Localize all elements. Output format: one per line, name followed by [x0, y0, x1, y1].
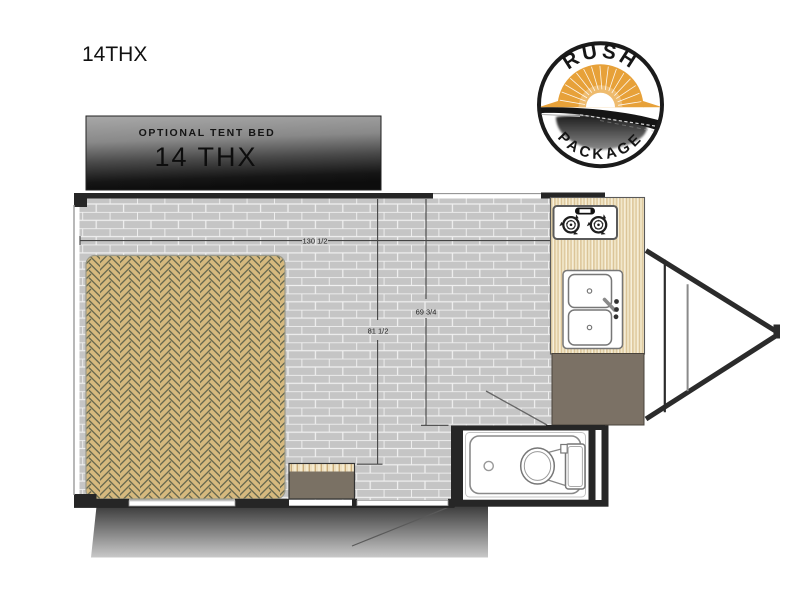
svg-text:69 3/4: 69 3/4 — [416, 308, 437, 317]
svg-text:OPTIONAL TENT BED: OPTIONAL TENT BED — [139, 127, 276, 139]
svg-text:14 THX: 14 THX — [154, 142, 257, 172]
svg-text:14THX: 14THX — [82, 43, 147, 66]
svg-text:130 1/2: 130 1/2 — [302, 236, 327, 245]
svg-text:81 1/2: 81 1/2 — [368, 327, 389, 336]
